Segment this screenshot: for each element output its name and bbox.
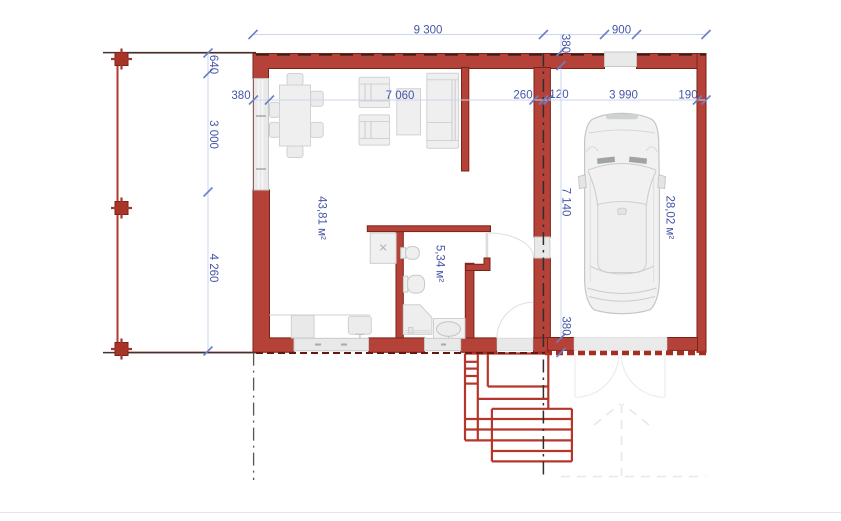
svg-text:3 990: 3 990 — [609, 90, 638, 102]
svg-text:260: 260 — [513, 90, 532, 102]
svg-text:640: 640 — [207, 55, 219, 74]
svg-text:7 140: 7 140 — [559, 188, 571, 217]
svg-text:4 260: 4 260 — [207, 254, 219, 283]
svg-text:3 000: 3 000 — [207, 120, 219, 149]
svg-text:380: 380 — [559, 316, 571, 335]
svg-text:120: 120 — [549, 89, 568, 101]
svg-text:28,02 м²: 28,02 м² — [664, 195, 676, 239]
svg-text:380: 380 — [231, 90, 250, 102]
svg-text:7 060: 7 060 — [386, 90, 415, 102]
svg-text:5,34 м²: 5,34 м² — [434, 245, 446, 282]
svg-text:43,81 м²: 43,81 м² — [316, 196, 328, 240]
svg-text:190: 190 — [678, 90, 697, 102]
svg-text:380: 380 — [559, 34, 571, 53]
svg-text:900: 900 — [612, 25, 631, 37]
svg-text:9 300: 9 300 — [414, 25, 443, 37]
